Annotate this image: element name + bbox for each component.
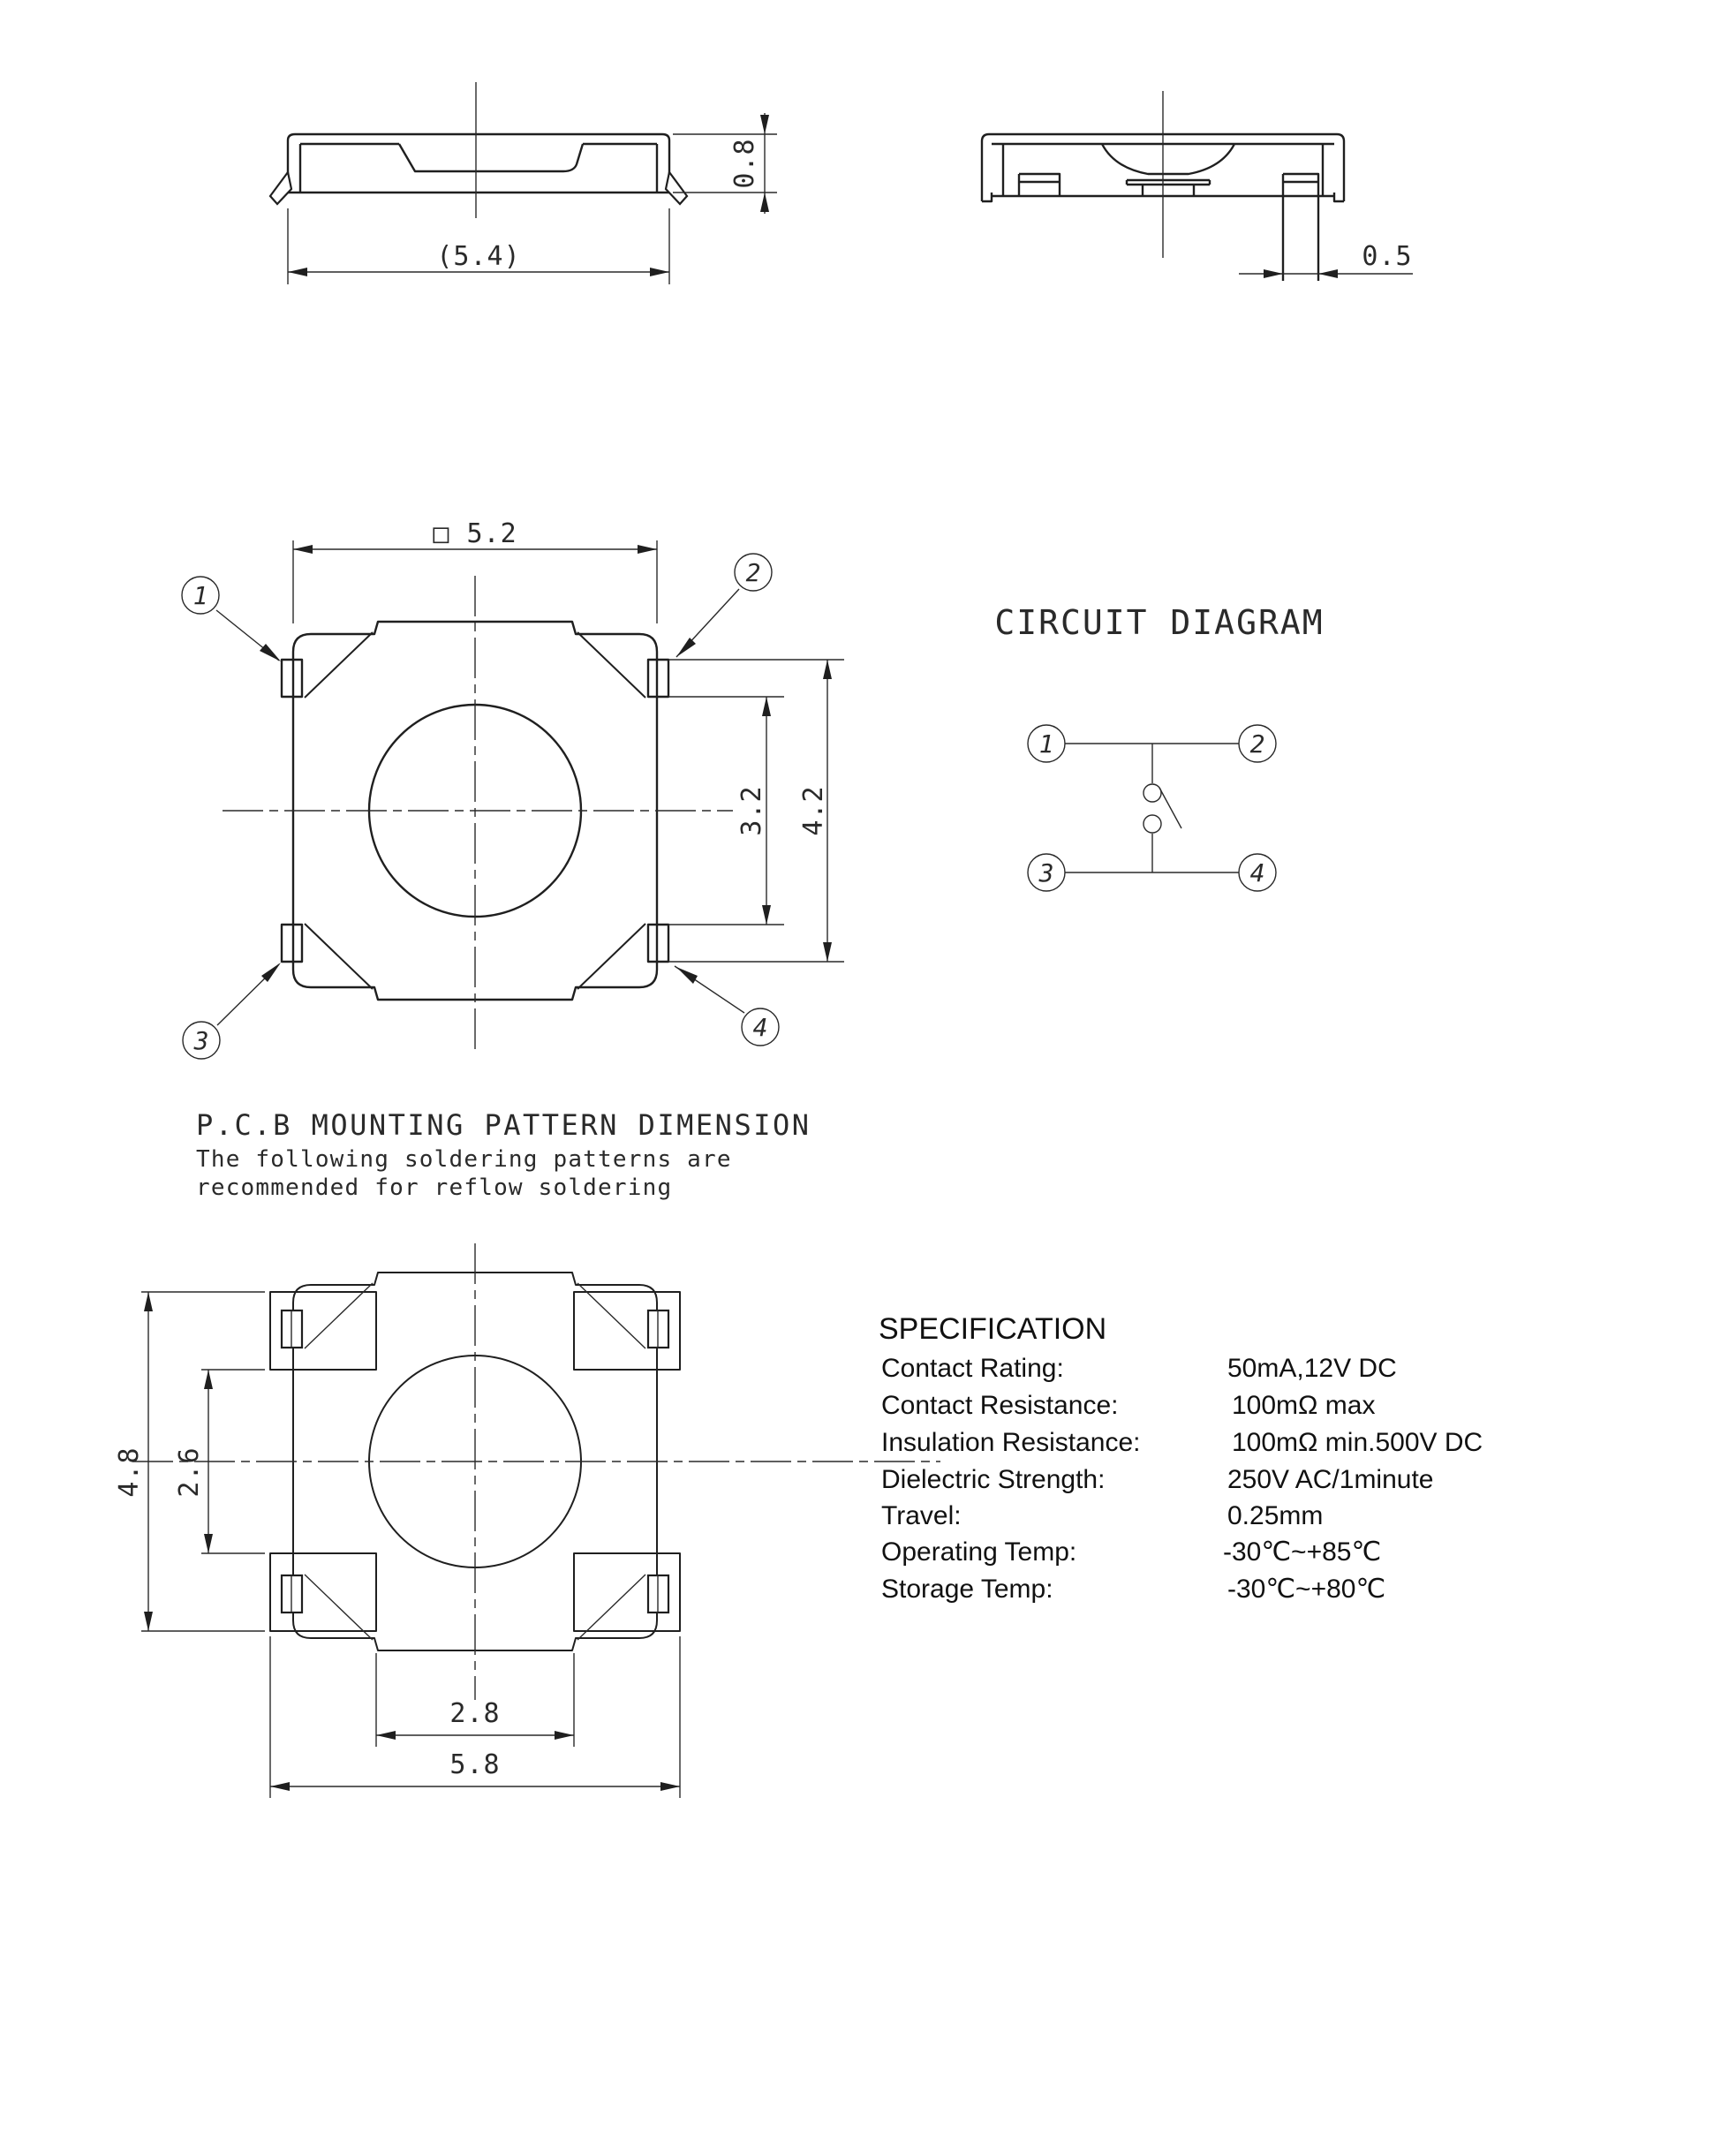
dim-top-width: □ 5.2 bbox=[433, 518, 517, 549]
dim-side-front-width: (5.4) bbox=[436, 241, 520, 272]
spec-value-contact-rating: 50mA,12V DC bbox=[1227, 1354, 1397, 1383]
terminal2-label: 2 bbox=[1250, 729, 1265, 759]
pcb-pattern-subtitle2: recommended for reflow soldering bbox=[196, 1174, 672, 1201]
dim-pattern-outer-width: 5.8 bbox=[449, 1749, 500, 1780]
pcb-title-block: P.C.B MOUNTING PATTERN DIMENSION The fol… bbox=[196, 1108, 811, 1201]
spec-label-dielectric-strength: Dielectric Strength: bbox=[881, 1465, 1105, 1494]
pin3-label: 3 bbox=[193, 1026, 209, 1055]
spec-label-insulation-resistance: Insulation Resistance: bbox=[881, 1428, 1141, 1457]
dim-pattern-outer-height: 4.8 bbox=[114, 1446, 145, 1497]
dim-pattern-inner-height: 2.6 bbox=[174, 1446, 205, 1497]
spec-value-travel: 0.25mm bbox=[1227, 1501, 1323, 1530]
circuit-wires bbox=[1065, 744, 1239, 872]
top-view-dim-lines bbox=[293, 540, 844, 962]
top-view: 1 2 3 4 □ 5.2 3.2 4.2 bbox=[182, 518, 844, 1059]
spec-label-operating-temp: Operating Temp: bbox=[881, 1537, 1076, 1567]
terminal4-label: 4 bbox=[1250, 858, 1265, 887]
side-view-front: (5.4) 0.8 bbox=[270, 82, 777, 284]
spec-value-dielectric-strength: 250V AC/1minute bbox=[1227, 1465, 1433, 1494]
spec-label-travel: Travel: bbox=[881, 1501, 962, 1530]
dim-pin-outer-span: 4.2 bbox=[798, 785, 829, 835]
spec-value-operating-temp: -30℃~+85℃ bbox=[1223, 1537, 1381, 1567]
dim-side-front-height: 0.8 bbox=[729, 138, 760, 188]
datasheet-page: (5.4) 0.8 0.5 1 2 3 4 □ 5.2 3.2 4.2 CIRC bbox=[0, 0, 1736, 2145]
dim-pattern-inner-width: 2.8 bbox=[449, 1698, 500, 1729]
top-view-dim-arrows bbox=[293, 545, 832, 962]
side-front-dim-lines bbox=[288, 113, 777, 284]
circuit-title: CIRCUIT DIAGRAM bbox=[994, 603, 1324, 642]
pcb-mounting-pattern: 4.8 2.6 2.8 5.8 bbox=[114, 1243, 940, 1798]
spec-label-storage-temp: Storage Temp: bbox=[881, 1575, 1053, 1604]
spec-value-storage-temp: -30℃~+80℃ bbox=[1227, 1575, 1385, 1604]
spec-value-contact-resistance: 100mΩ max bbox=[1232, 1391, 1375, 1420]
top-view-leader-lines bbox=[216, 589, 744, 1025]
pattern-dim-arrows bbox=[144, 1292, 680, 1791]
pin4-label: 4 bbox=[753, 1013, 768, 1042]
circuit-diagram: CIRCUIT DIAGRAM 1 2 3 4 bbox=[994, 603, 1324, 891]
side-view-section: 0.5 bbox=[982, 91, 1413, 281]
side-front-foot-right bbox=[666, 172, 687, 204]
side-section-pin bbox=[1283, 196, 1318, 281]
side-front-body-outline bbox=[288, 134, 669, 193]
terminal3-label: 3 bbox=[1038, 858, 1054, 887]
circuit-contact-lower bbox=[1143, 815, 1161, 833]
spec-value-insulation-resistance: 100mΩ min.500V DC bbox=[1232, 1428, 1483, 1457]
dim-pin-width: 0.5 bbox=[1362, 241, 1412, 272]
dim-pin-inner-span: 3.2 bbox=[736, 785, 767, 835]
side-front-foot-left bbox=[270, 172, 291, 204]
pin1-label: 1 bbox=[193, 581, 208, 610]
spec-label-contact-resistance: Contact Resistance: bbox=[881, 1391, 1118, 1420]
pin2-label: 2 bbox=[746, 558, 761, 587]
spec-label-contact-rating: Contact Rating: bbox=[881, 1354, 1064, 1383]
pcb-pattern-title: P.C.B MOUNTING PATTERN DIMENSION bbox=[196, 1108, 811, 1142]
spec-title: SPECIFICATION bbox=[879, 1312, 1106, 1346]
pcb-pattern-subtitle1: The following soldering patterns are bbox=[196, 1146, 732, 1173]
specification-table: SPECIFICATION Contact Rating: 50mA,12V D… bbox=[879, 1312, 1483, 1604]
side-front-dim-arrows bbox=[288, 115, 769, 276]
circuit-contact-upper bbox=[1143, 784, 1161, 802]
terminal1-label: 1 bbox=[1039, 729, 1054, 759]
